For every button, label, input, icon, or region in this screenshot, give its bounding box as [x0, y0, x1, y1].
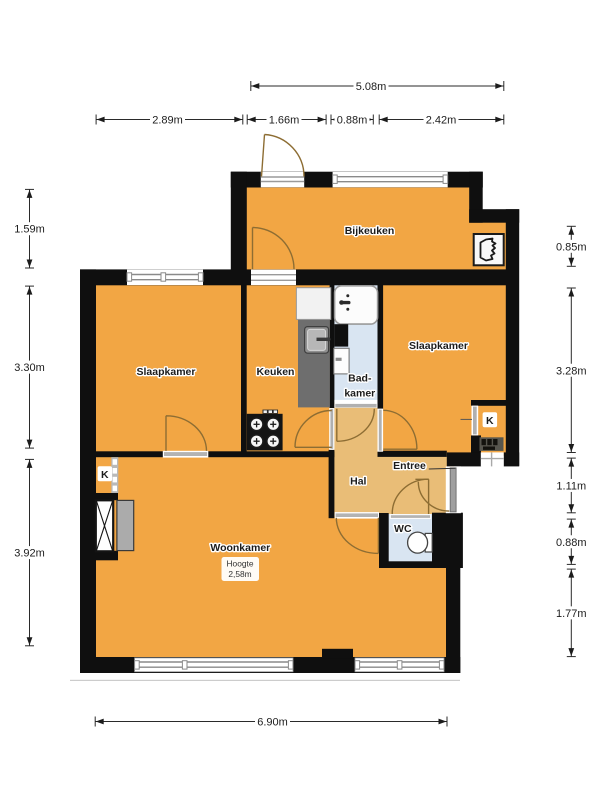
svg-text:2.89m: 2.89m: [152, 115, 183, 127]
svg-text:Hoogte: Hoogte: [226, 559, 253, 569]
svg-text:K: K: [486, 415, 494, 427]
svg-text:Slaapkamer: Slaapkamer: [137, 366, 196, 378]
svg-text:Keuken: Keuken: [257, 366, 295, 378]
svg-text:1.11m: 1.11m: [556, 480, 586, 492]
svg-text:3.30m: 3.30m: [14, 362, 45, 374]
svg-text:Slaapkamer: Slaapkamer: [409, 340, 468, 352]
svg-text:0.88m: 0.88m: [337, 115, 368, 127]
svg-text:2,58m: 2,58m: [228, 569, 251, 579]
svg-text:0.88m: 0.88m: [556, 537, 587, 549]
svg-text:5.08m: 5.08m: [356, 81, 387, 93]
svg-text:6.90m: 6.90m: [257, 717, 288, 729]
svg-text:kamer: kamer: [344, 388, 375, 400]
svg-text:1.66m: 1.66m: [269, 115, 300, 127]
svg-text:0.85m: 0.85m: [556, 241, 587, 253]
svg-text:Woonkamer: Woonkamer: [210, 542, 270, 554]
svg-text:Bad-: Bad-: [348, 373, 372, 385]
svg-text:Entree: Entree: [393, 460, 426, 472]
svg-text:Bijkeuken: Bijkeuken: [345, 225, 395, 237]
svg-text:K: K: [101, 469, 109, 481]
svg-text:2.42m: 2.42m: [426, 115, 457, 127]
svg-text:Hal: Hal: [350, 476, 366, 488]
svg-text:1.77m: 1.77m: [556, 608, 587, 620]
svg-text:1.59m: 1.59m: [14, 224, 45, 236]
svg-text:WC: WC: [394, 523, 412, 535]
svg-text:3.28m: 3.28m: [556, 365, 587, 377]
svg-text:3.92m: 3.92m: [14, 548, 45, 560]
